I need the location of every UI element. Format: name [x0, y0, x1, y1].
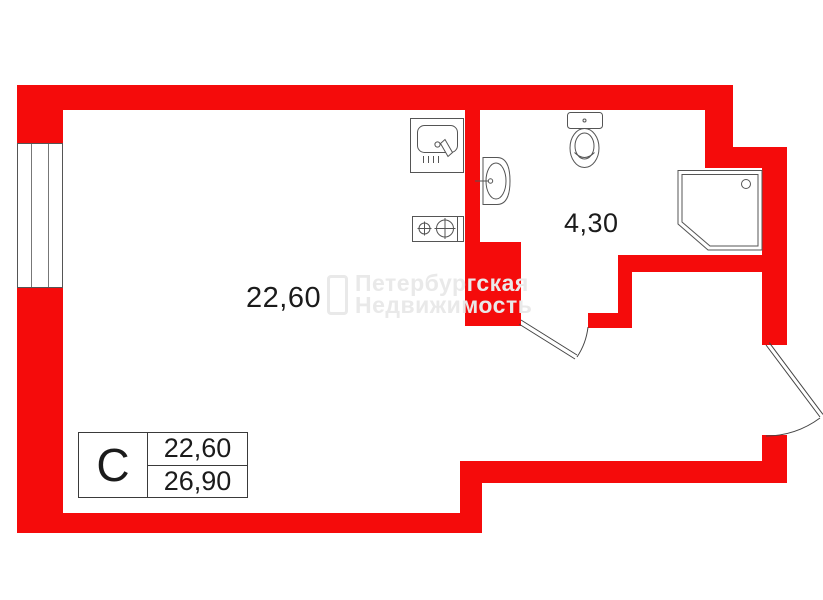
legend-living-area-cell: 22,60: [148, 433, 247, 465]
entrance-door-icon: [766, 343, 823, 436]
wall-left-upper: [17, 85, 63, 143]
legend-table: С 22,60 26,90: [78, 432, 248, 498]
wall-step-horizontal: [705, 147, 787, 168]
watermark-logo-icon: [327, 275, 348, 315]
legend-total-area-cell: 26,90: [148, 465, 247, 498]
wall-bathroom-bottom: [625, 255, 764, 272]
wall-step-vertical: [705, 110, 733, 147]
watermark-line1: Петербургская: [355, 272, 532, 294]
bathroom-door-icon: [519, 320, 588, 359]
watermark-line2: Недвижимость: [355, 294, 532, 316]
wall-bottom-upper: [460, 461, 787, 483]
shower-icon: [678, 171, 762, 251]
wall-right-door-jamb: [762, 435, 787, 461]
wall-left-lower: [17, 288, 63, 533]
watermark: Петербургская Недвижимость: [327, 272, 532, 316]
main-room-area-label: 22,60: [246, 282, 321, 315]
kitchen-sink-icon: [411, 119, 464, 173]
wall-top: [17, 85, 733, 110]
window-pane-line: [48, 144, 49, 287]
wall-bottom-lower: [17, 513, 482, 533]
wall-bathroom-left: [465, 110, 480, 242]
stove-icon: [413, 217, 464, 242]
floor-plan: 22,60 4,30 С 22,60 26,90 Петербургская Н…: [0, 0, 823, 600]
wall-right-upper: [762, 168, 787, 345]
legend-type-cell: С: [79, 433, 148, 497]
bath-sink-icon: [475, 158, 510, 205]
window-icon: [17, 143, 63, 288]
bathroom-area-label: 4,30: [564, 208, 619, 239]
wall-bathroom-stub: [588, 313, 632, 328]
window-pane-line: [31, 144, 32, 287]
toilet-icon: [568, 113, 603, 168]
